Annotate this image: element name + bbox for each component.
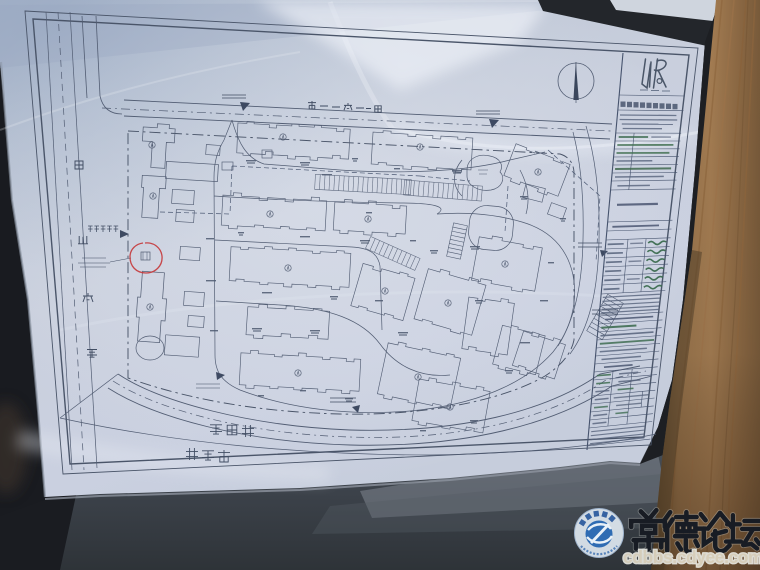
svg-text:cdbbs.cdyee.com: cdbbs.cdyee.com	[623, 547, 760, 567]
